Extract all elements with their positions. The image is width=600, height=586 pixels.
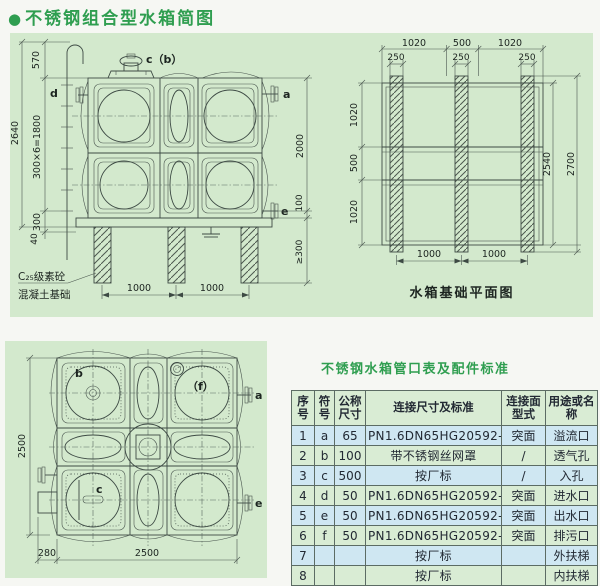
table-row: 4 d 50 PN1.6DN65HG20592-97 突面 进水口: [292, 486, 598, 506]
tank-plan-view-drawing: a e b （f） c 2500 280: [5, 341, 267, 578]
cell-seq: 5: [292, 506, 315, 526]
cell-seq: 7: [292, 546, 315, 566]
dim-pad-250a: 250: [387, 53, 404, 63]
dim-570: 570: [31, 51, 42, 69]
cell-symbol: e: [315, 506, 335, 526]
pipe-table-header-row: 序号 符号 公称尺寸 连接尺寸及标准 连接面型式 用途或名称: [292, 391, 598, 426]
cell-usage: 入孔: [546, 466, 598, 486]
dim-top-500: 500: [453, 38, 471, 49]
dim-2500-bottom: 2500: [135, 548, 159, 559]
plan-nozzle-e: [237, 495, 252, 511]
external-ladder: [61, 45, 83, 260]
cell-face: /: [502, 466, 546, 486]
cell-face: 突面: [502, 426, 546, 446]
dim-top-1020a: 1020: [402, 38, 426, 49]
dim-left-1020a: 1020: [349, 103, 360, 127]
cell-size: 500: [335, 466, 366, 486]
nozzle-d: [76, 87, 88, 103]
pipe-table-section: 不锈钢水箱管口表及配件标准 序号 符号 公称尺寸 连接尺寸及标准 连接面型式 用…: [291, 358, 598, 586]
page-title-text: 不锈钢组合型水箱简图: [25, 9, 215, 29]
foundation-note-line1: C₂₅级素砼: [18, 270, 66, 283]
elevation-label-e: e: [281, 205, 288, 218]
dim-bottom-1000a: 1000: [417, 249, 441, 260]
cell-size: 50: [335, 506, 366, 526]
cell-symbol: b: [315, 446, 335, 466]
dim-1000-right: 1000: [200, 283, 224, 294]
plan-label-e: e: [255, 497, 262, 510]
cell-symbol: d: [315, 486, 335, 506]
plan-label-b: b: [75, 367, 83, 380]
foundation-note-line2: 混凝土基础: [18, 288, 71, 301]
foundation-plan-frame: [382, 76, 543, 252]
cell-face: 突面: [502, 506, 546, 526]
plan-label-c: c: [96, 483, 103, 496]
dim-300: 300: [32, 213, 43, 231]
nozzle-e: [262, 203, 278, 219]
cell-seq: 2: [292, 446, 315, 466]
elevation-bottom-dimensions: [102, 285, 249, 299]
dim-left-500: 500: [349, 154, 360, 172]
table-row: 2 b 100 带不锈钢丝网罩 / 透气孔: [292, 446, 598, 466]
cell-connection: PN1.6DN65HG20592-97: [366, 426, 502, 446]
plan-left-dimensions: [358, 80, 382, 248]
cell-size: 100: [335, 446, 366, 466]
cell-face: 突面: [502, 526, 546, 546]
elevation-left-dimensions: [19, 39, 88, 239]
dim-280: 280: [38, 548, 56, 559]
dim-ladder: 300×6=1800: [32, 115, 43, 179]
foundation-piers: [76, 218, 272, 283]
table-row: 6 f 50 PN1.6DN65HG20592-97 突面 排污口: [292, 526, 598, 546]
plan-left-nozzle: [38, 467, 57, 513]
dim-2000: 2000: [295, 134, 306, 158]
cell-seq: 1: [292, 426, 315, 446]
cell-size: 50: [335, 526, 366, 546]
dim-ge300: ≥300: [295, 239, 305, 264]
dim-pad-250c: 250: [518, 53, 535, 63]
foundation-plan-drawing: 1020 500 1020 250 250 250 1020 500 1020 …: [340, 33, 593, 317]
dim-1000-left: 1000: [127, 283, 151, 294]
cell-symbol: c: [315, 466, 335, 486]
cell-connection: PN1.6DN65HG20592-97: [366, 486, 502, 506]
tank-elevation-drawing: c（b） d a e: [10, 33, 340, 317]
top-drawing-panel: c（b） d a e: [10, 33, 593, 317]
drain-nozzle-f: [202, 227, 220, 237]
cell-connection: 带不锈钢丝网罩: [366, 446, 502, 466]
title-bullet-icon: ●: [8, 10, 23, 28]
elevation-label-cb: c（b）: [146, 53, 182, 66]
tank-body: [72, 72, 278, 218]
elevation-label-a: a: [283, 88, 290, 101]
cell-connection: PN1.6DN65HG20592-97: [366, 506, 502, 526]
cell-connection: 按厂标: [366, 546, 502, 566]
header-usage-name: 用途或名称: [546, 391, 598, 426]
scanned-water-tank-drawing-page: { "title": {"bullet": "●", "text": "不锈钢组…: [0, 0, 600, 583]
cell-face: 突面: [502, 486, 546, 506]
cell-symbol: f: [315, 526, 335, 546]
cell-usage: 进水口: [546, 486, 598, 506]
table-row: 7 按厂标 外扶梯: [292, 546, 598, 566]
header-face-type: 连接面型式: [502, 391, 546, 426]
header-seq: 序号: [292, 391, 315, 426]
dim-100: 100: [295, 194, 305, 211]
pipe-table-title: 不锈钢水箱管口表及配件标准: [321, 358, 598, 377]
dim-40: 40: [30, 233, 40, 245]
cell-seq: 3: [292, 466, 315, 486]
cell-symbol: [315, 546, 335, 566]
cell-usage: 外扶梯: [546, 546, 598, 566]
dim-pad-250b: 250: [452, 53, 469, 63]
dim-top-1020b: 1020: [498, 38, 522, 49]
plan-nozzle-a: [237, 387, 252, 403]
cell-seq: 4: [292, 486, 315, 506]
plan-label-f: （f）: [187, 380, 214, 393]
plan-label-a: a: [255, 389, 262, 402]
cell-seq: 6: [292, 526, 315, 546]
dim-2540: 2540: [542, 152, 553, 176]
dim-2700: 2700: [566, 152, 577, 176]
elevation-label-d: d: [50, 87, 58, 100]
table-row: 5 e 50 PN1.6DN65HG20592-97 突面 出水口: [292, 506, 598, 526]
cell-usage: 排污口: [546, 526, 598, 546]
table-row: 3 c 500 按厂标 / 入孔: [292, 466, 598, 486]
cell-face: [502, 546, 546, 566]
dim-2640: 2640: [10, 121, 21, 145]
cell-connection: PN1.6DN65HG20592-97: [366, 526, 502, 546]
cell-connection: 按厂标: [366, 466, 502, 486]
cell-face: /: [502, 446, 546, 466]
page-title: ●不锈钢组合型水箱简图: [8, 4, 215, 29]
cell-usage: 出水口: [546, 506, 598, 526]
header-connection-standard: 连接尺寸及标准: [366, 391, 502, 426]
dim-bottom-1000b: 1000: [482, 249, 506, 260]
foundation-plan-title: 水箱基础平面图: [409, 285, 514, 301]
cell-symbol: a: [315, 426, 335, 446]
dim-left-1020b: 1020: [349, 200, 360, 224]
cell-usage: 透气孔: [546, 446, 598, 466]
table-row: 1 a 65 PN1.6DN65HG20592-97 突面 溢流口: [292, 426, 598, 446]
cell-size: 65: [335, 426, 366, 446]
pipe-table: 序号 符号 公称尺寸 连接尺寸及标准 连接面型式 用途或名称 1 a 65 PN…: [291, 390, 598, 586]
cell-size: 50: [335, 486, 366, 506]
bottom-drawing-panel: a e b （f） c 2500 280: [5, 341, 267, 578]
dim-2500-left: 2500: [17, 434, 28, 458]
cell-usage: 溢流口: [546, 426, 598, 446]
header-nominal-size: 公称尺寸: [335, 391, 366, 426]
header-symbol: 符号: [315, 391, 335, 426]
cell-size: [335, 546, 366, 566]
